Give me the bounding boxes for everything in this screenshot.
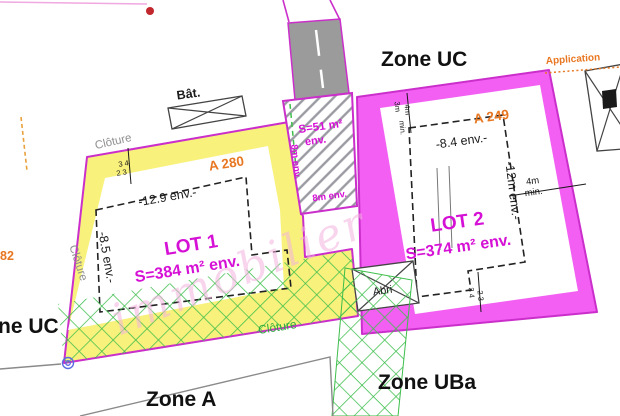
division-plan: immobilier Zone UC ne UC Zone A Zone UBa… bbox=[0, 0, 620, 416]
lot2-bottom-mark-2: 2 3 bbox=[475, 290, 485, 301]
zone-uc-label: Zone UC bbox=[381, 48, 467, 71]
plan-svg: immobilier Zone UC ne UC Zone A Zone UBa… bbox=[0, 0, 620, 416]
parcel-ref-edge: 82 bbox=[0, 249, 14, 263]
lot1-corner-mark-2: 2 3 bbox=[116, 167, 128, 178]
zone-a-label: Zone A bbox=[146, 388, 216, 411]
survey-dot-red bbox=[146, 7, 154, 15]
lot2-top-mark-1: 3m bbox=[392, 101, 402, 112]
zone-uba-label: Zone UBa bbox=[378, 371, 476, 394]
zone-uc-left-label: ne UC bbox=[0, 315, 59, 338]
lot2-top-mark-2: 4m bbox=[402, 104, 412, 115]
lot2-bottom-mark-1: 3 4 bbox=[466, 287, 476, 298]
road-surface bbox=[288, 19, 349, 100]
lot2-top-mark-3: min. bbox=[397, 120, 407, 135]
